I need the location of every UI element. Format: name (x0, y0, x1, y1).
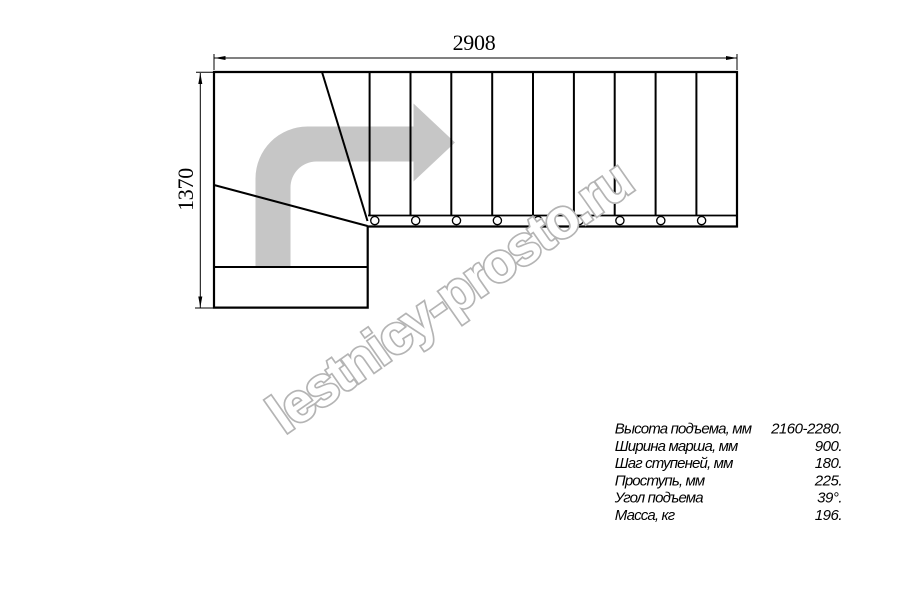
svg-text:Ширина марша, мм: Ширина марша, мм (615, 438, 738, 455)
svg-text:Угол подъема: Угол подъема (614, 490, 703, 507)
svg-text:2160-2280.: 2160-2280. (770, 421, 842, 438)
svg-text:225.: 225. (814, 472, 842, 489)
svg-text:39°.: 39°. (817, 490, 842, 507)
svg-text:1370: 1370 (173, 168, 198, 211)
svg-text:180.: 180. (815, 455, 842, 472)
svg-text:Масса, кг: Масса, кг (615, 507, 676, 524)
svg-text:Шаг ступеней, мм: Шаг ступеней, мм (615, 455, 733, 472)
svg-text:2908: 2908 (453, 30, 496, 55)
svg-text:Высота подъема, мм: Высота подъема, мм (615, 421, 752, 438)
svg-text:Проступь, мм: Проступь, мм (615, 472, 705, 489)
svg-text:196.: 196. (815, 507, 842, 524)
svg-text:900.: 900. (815, 438, 842, 455)
